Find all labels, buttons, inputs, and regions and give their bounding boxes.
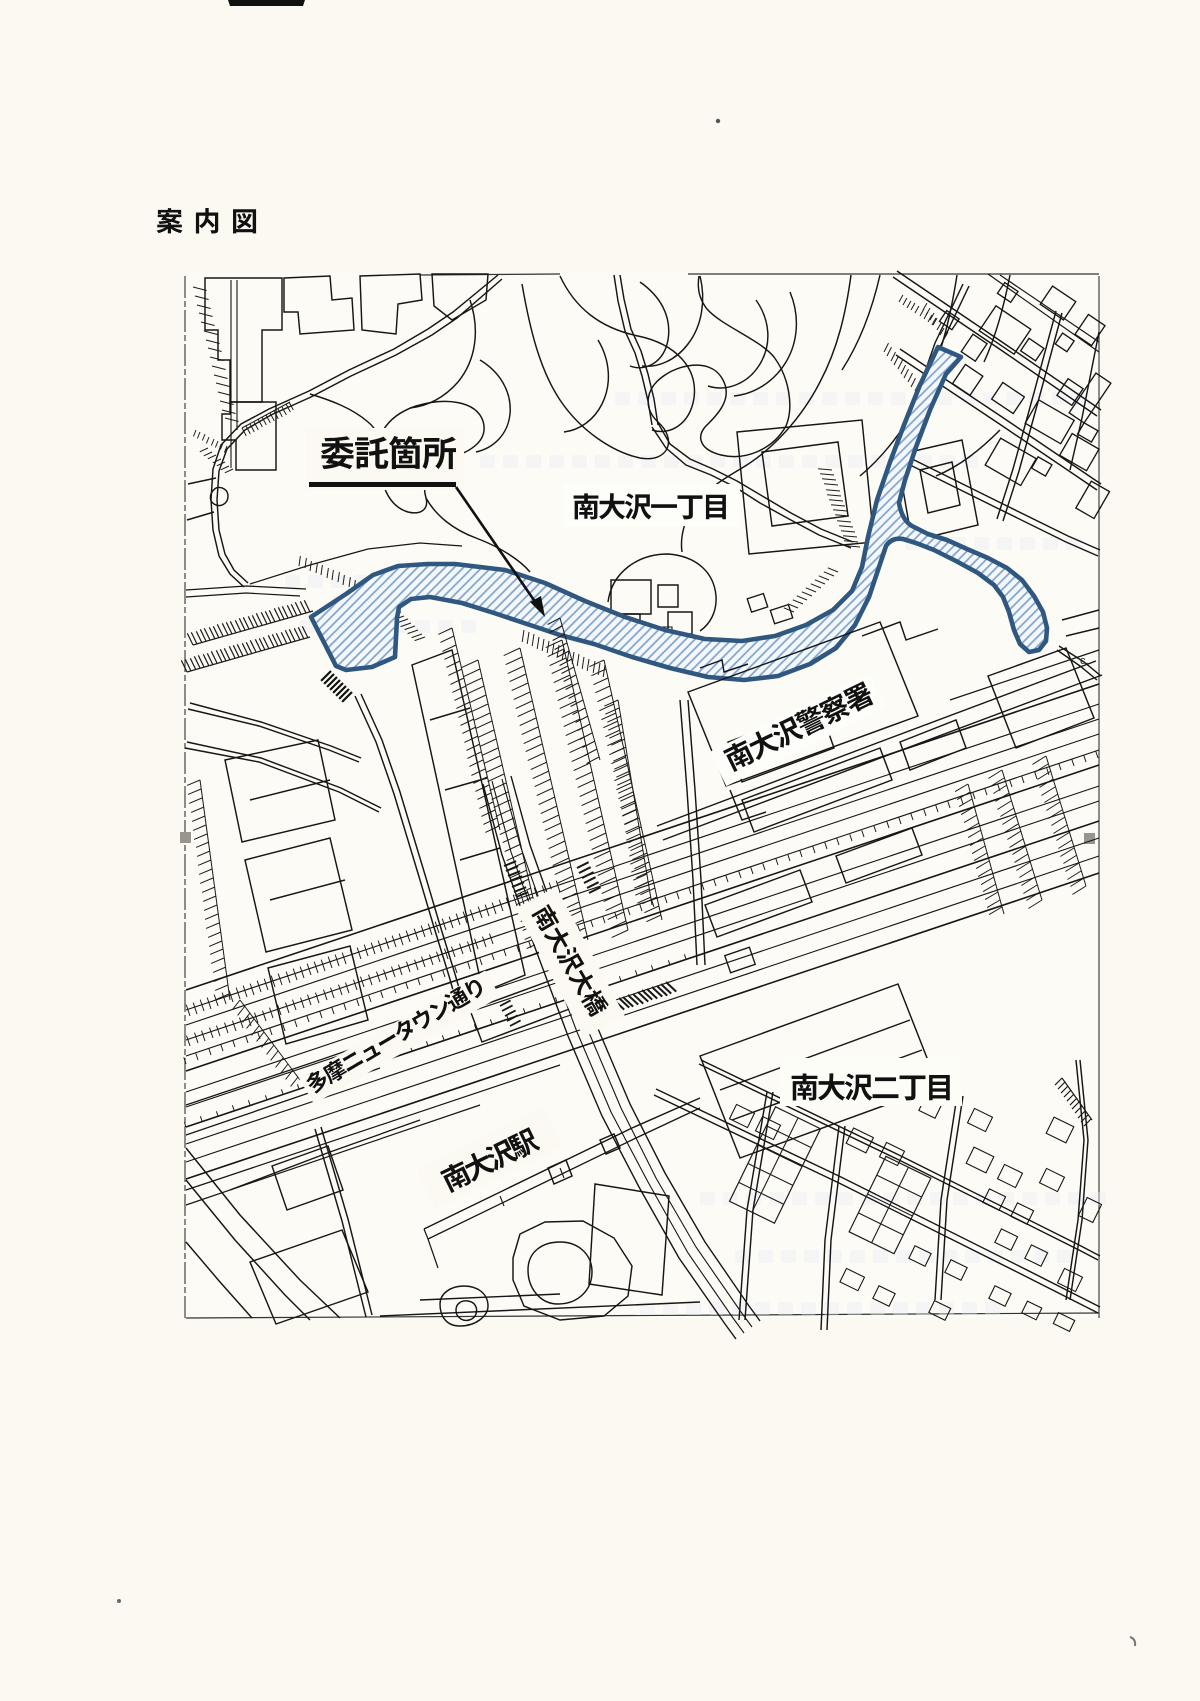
svg-text:c.: c. [1080,655,1089,667]
